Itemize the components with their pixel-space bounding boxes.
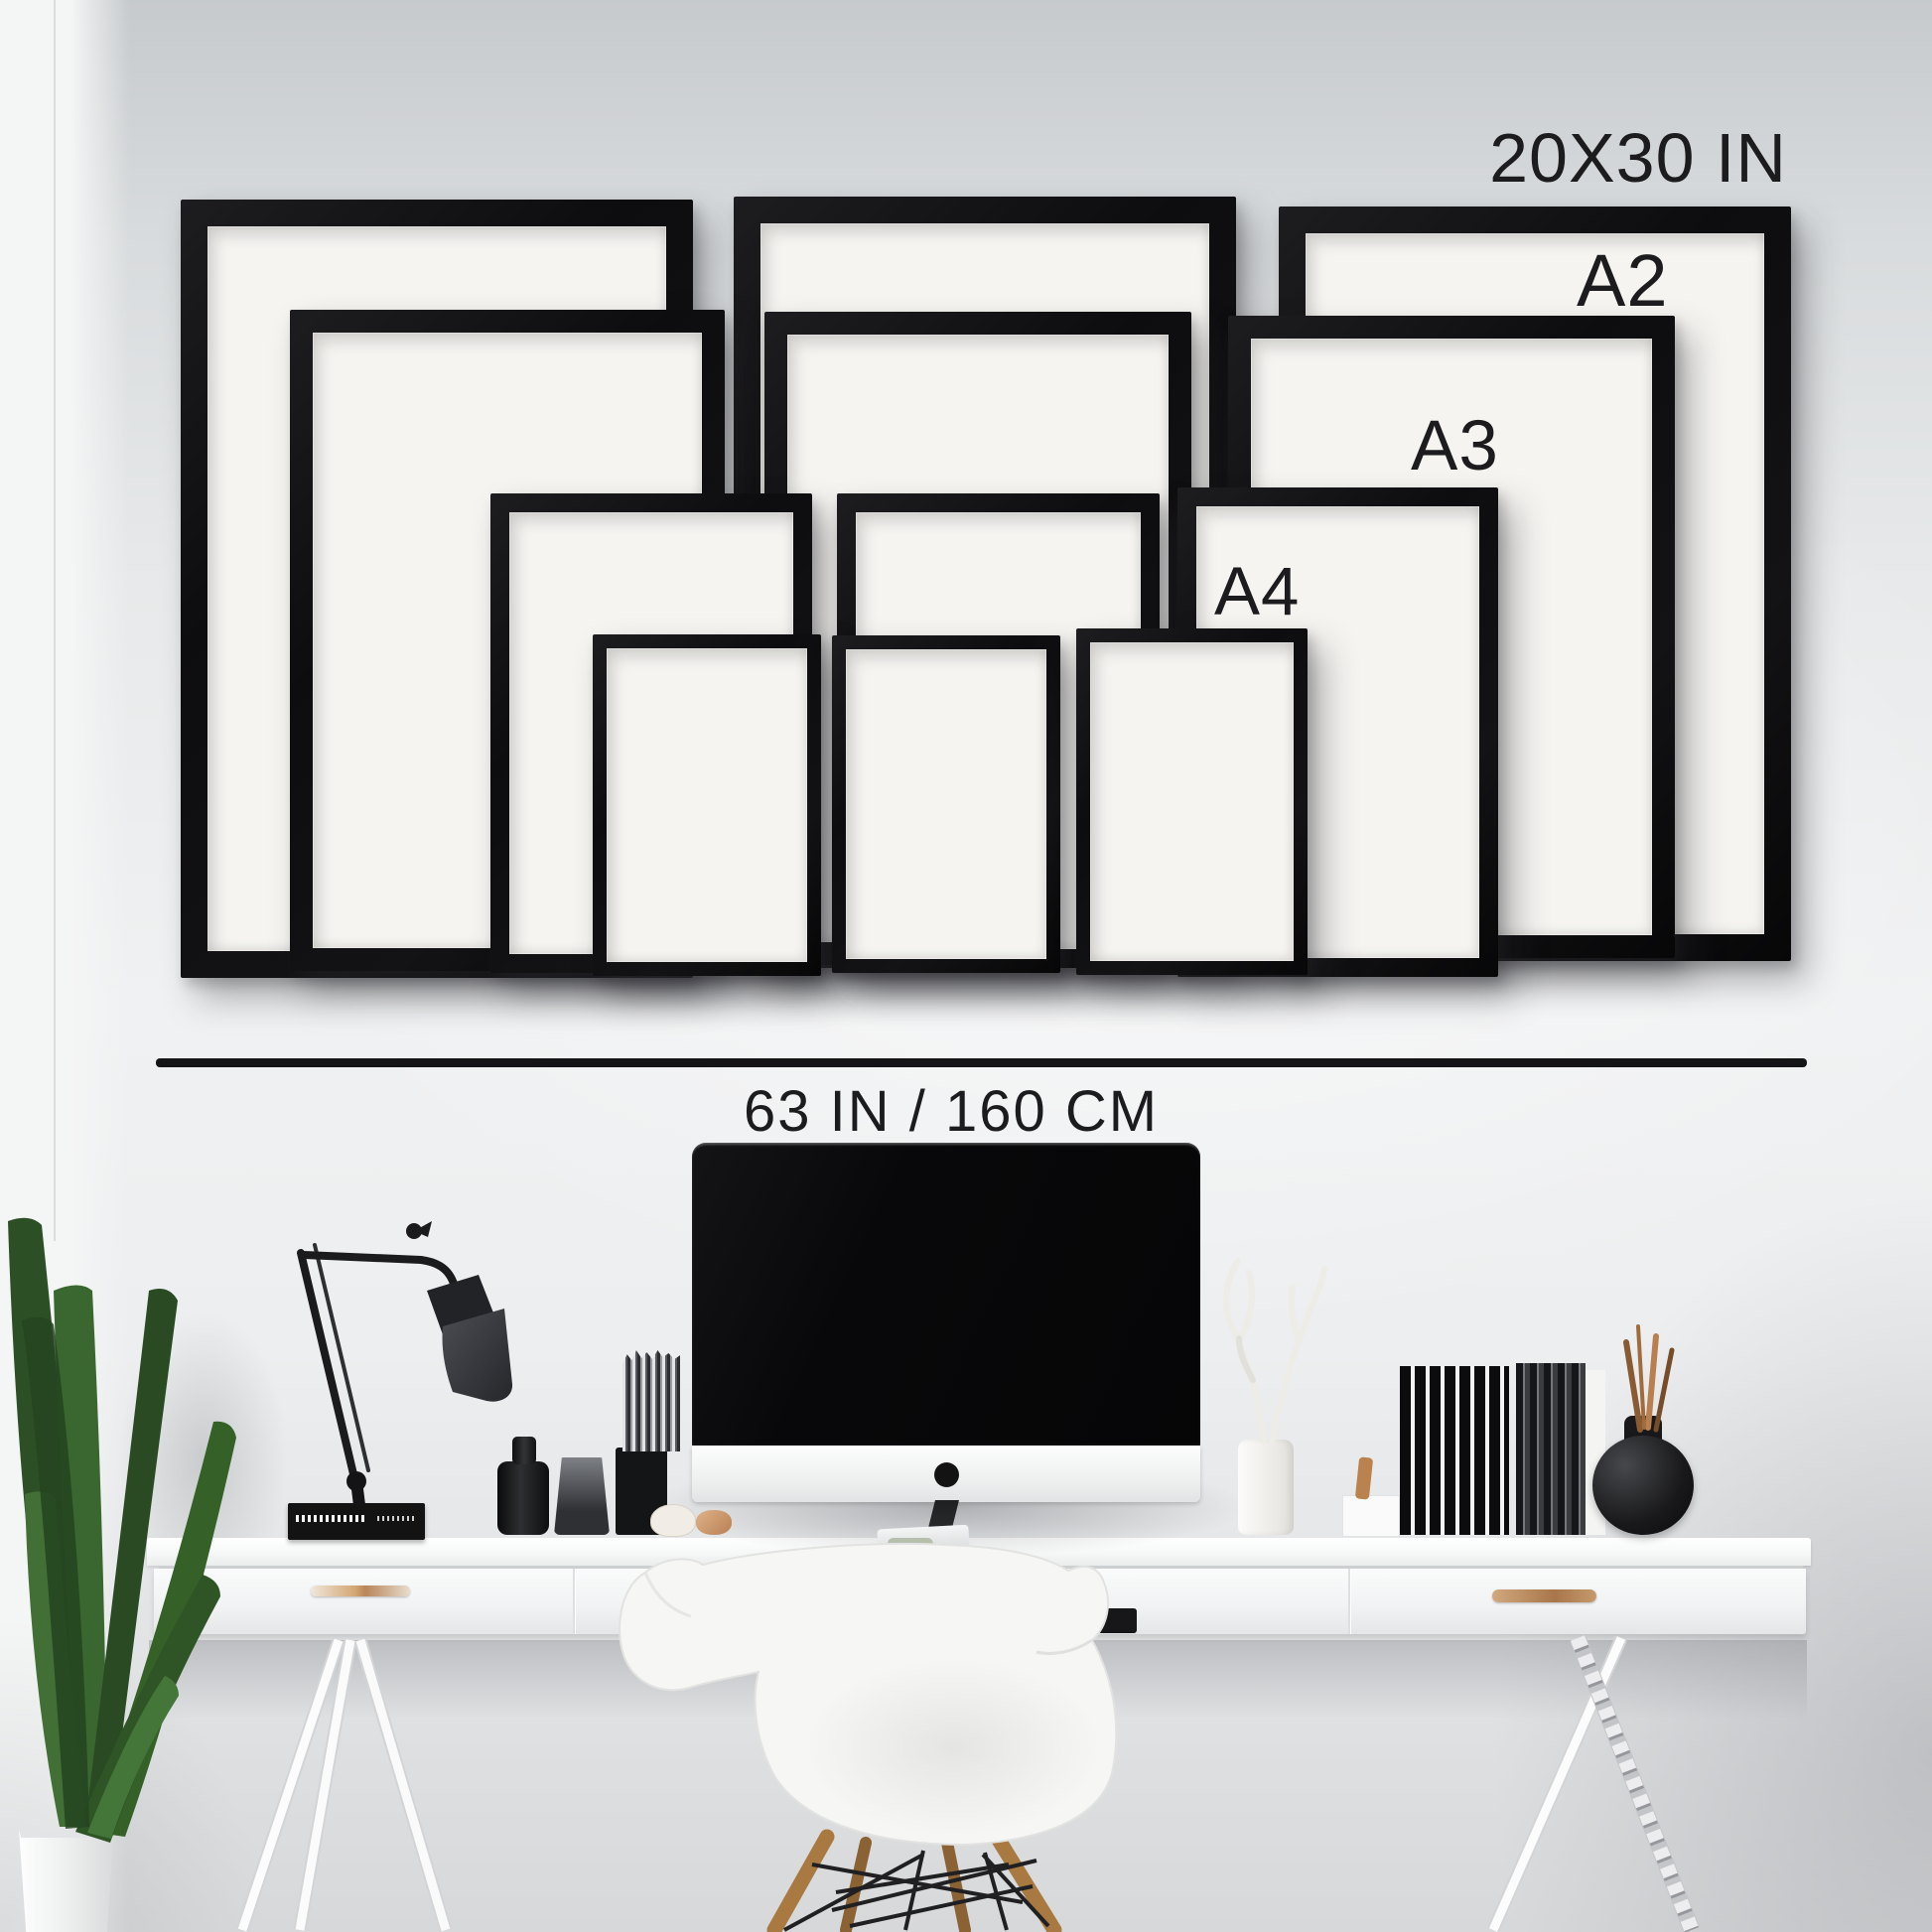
desk-lamp — [301, 1221, 512, 1505]
desk-legs-left — [242, 1640, 446, 1930]
vase-sticks — [1626, 1326, 1672, 1430]
desk-chair — [620, 1544, 1116, 1930]
scene-vector-overlay — [0, 0, 1932, 1932]
frame-size-guide-photo: 20X30 IN A2 A3 A4 63 IN / 160 CM — [0, 0, 1932, 1932]
coral-branches — [1226, 1261, 1324, 1442]
potted-plant-leaves — [8, 1218, 236, 1843]
desk-legs-right — [1493, 1638, 1692, 1930]
